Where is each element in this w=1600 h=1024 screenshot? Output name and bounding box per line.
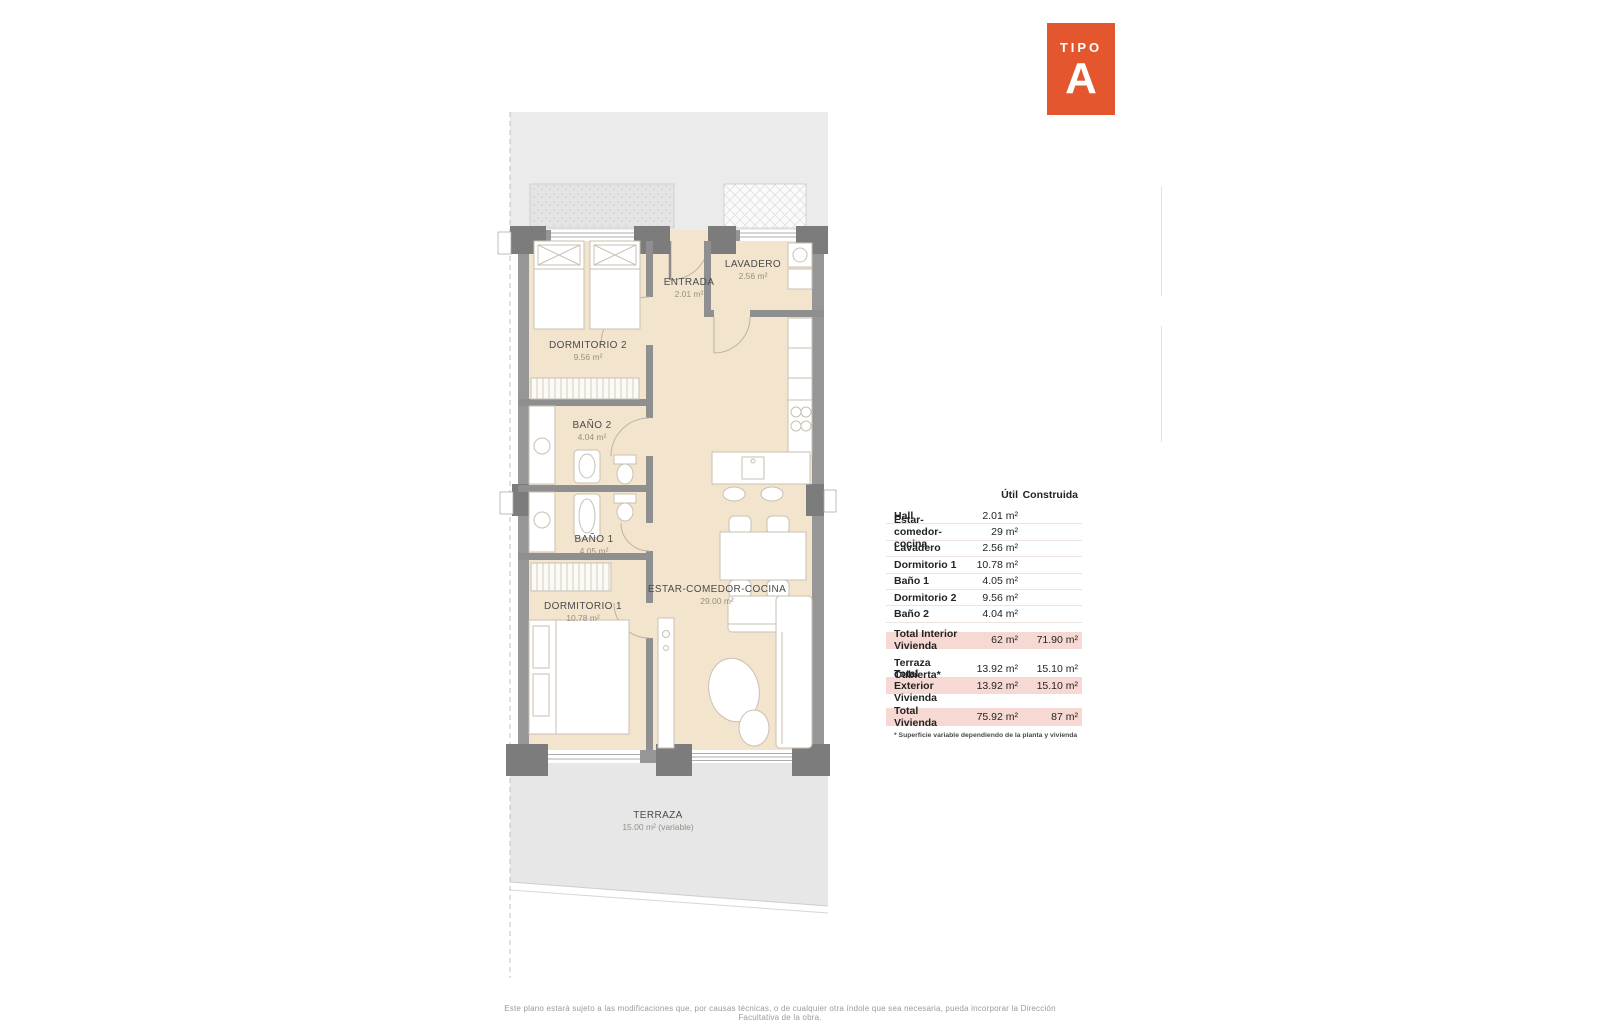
type-badge-letter: A [1047,56,1115,102]
pillow-icon [533,626,549,668]
room-label-entrada: ENTRADA 2.01 m² [664,277,715,299]
sink-icon [534,438,550,454]
disclaimer-text: Este plano estará sujeto a las modificac… [500,1004,1060,1022]
room-label-bano-2: BAÑO 2 4.04 m² [572,420,611,442]
stool-icon [723,487,745,501]
room-label-terraza: TERRAZA 15.00 m² (variable) [622,810,693,832]
table-row: Baño 2 4.04 m² [886,606,1082,622]
room-label-estar-comedor-cocina: ESTAR-COMEDOR-COCINA 29.00 m² [648,584,786,606]
room-label-dormitorio-1: DORMITORIO 1 10.78 m² [544,601,622,623]
table-row: Dormitorio 1 10.78 m² [886,557,1082,573]
table-header: Útil Construida [886,487,1082,503]
total-vivienda-row: Total Vivienda 75.92 m² 87 m² [886,708,1082,726]
dining-table-icon [720,532,806,580]
floor-plan [0,0,1600,1024]
wardrobe-icon [531,378,639,399]
areas-table: Útil Construida Hall 2.01 m² Estar-comed… [886,487,1082,739]
stool-icon [761,487,783,501]
type-badge: TIPO A [1047,23,1115,115]
room-label-dormitorio-2: DORMITORIO 2 9.56 m² [549,340,627,362]
table-footnote: * Superficie variable dependiendo de la … [886,732,1082,739]
total-exterior-row: Total Exterior Vivienda 13.92 m² 15.10 m… [886,677,1082,694]
reference-line [1161,186,1162,296]
chair-icon [767,516,789,534]
reference-line [1161,326,1162,442]
pergola-hatch [530,184,674,228]
table-row: Baño 1 4.05 m² [886,574,1082,590]
furniture-lavadero [788,243,812,289]
chair-icon [729,516,751,534]
sink-icon [534,512,550,528]
wardrobe-icon [531,563,611,591]
room-label-bano-1: BAÑO 1 4.05 m² [574,534,613,556]
total-interior-row: Total Interior Vivienda 62 m² 71.90 m² [886,632,1082,649]
col-header-util: Útil [960,489,1018,501]
floor-plan-page: DORMITORIO 2 9.56 m² ENTRADA 2.01 m² LAV… [0,0,1600,1024]
sofa-icon [776,596,812,748]
pillow-icon [533,674,549,716]
type-badge-label: TIPO [1047,40,1115,55]
table-row: Lavadero 2.56 m² [886,541,1082,557]
exterior-area [510,112,828,230]
lattice-panel [724,184,806,228]
col-header-construida: Construida [1018,489,1078,501]
toilet-icon [614,455,636,464]
kitchen-counter-icon [788,318,812,456]
toilet-icon [614,494,636,503]
terrace-area [510,763,828,913]
table-row: Estar-comedor-cocina 29 m² [886,524,1082,540]
laundry-shelf-icon [788,269,812,289]
side-table-icon [739,710,769,746]
room-label-lavadero: LAVADERO 2.56 m² [725,259,781,281]
table-row: Dormitorio 2 9.56 m² [886,590,1082,606]
cooktop-icon [791,407,801,417]
